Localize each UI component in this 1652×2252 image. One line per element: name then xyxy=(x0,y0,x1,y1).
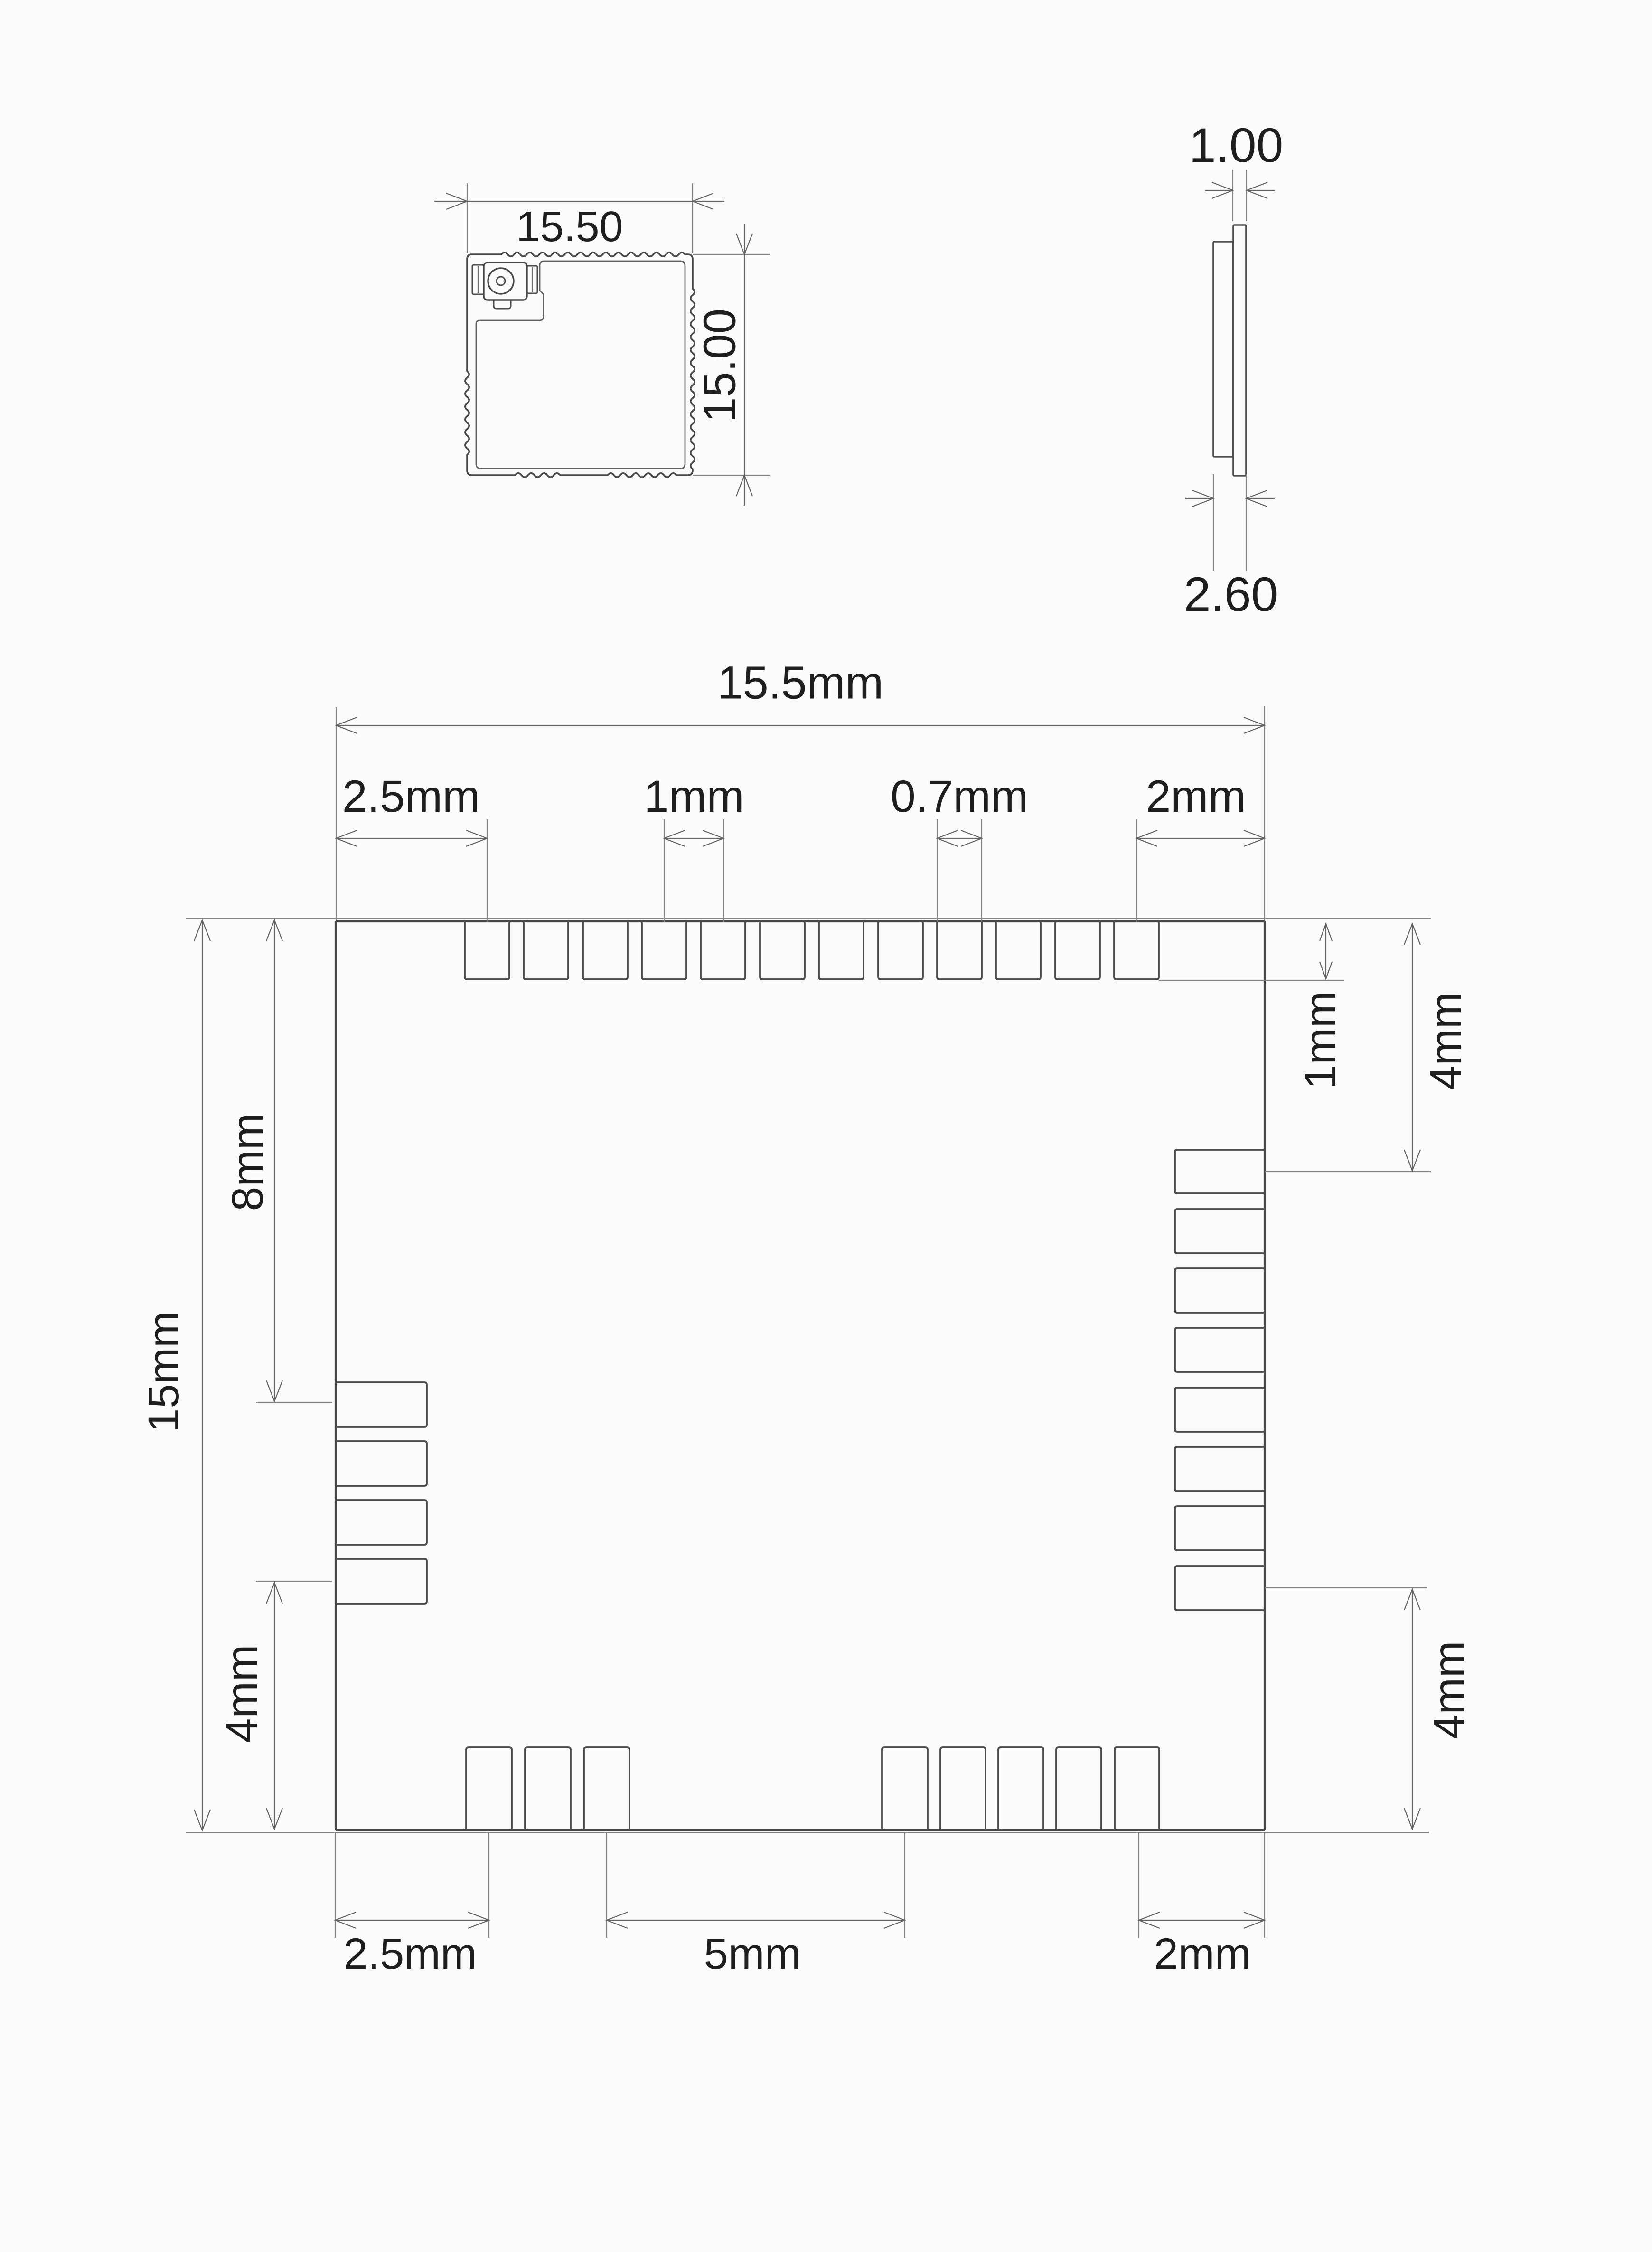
svg-text:15mm: 15mm xyxy=(140,1311,188,1433)
svg-text:15.50: 15.50 xyxy=(516,203,623,251)
svg-text:2mm: 2mm xyxy=(1154,1930,1251,1978)
svg-text:4mm: 4mm xyxy=(1424,1641,1474,1739)
svg-text:15.5mm: 15.5mm xyxy=(717,657,883,709)
svg-text:8mm: 8mm xyxy=(223,1113,272,1211)
svg-text:0.7mm: 0.7mm xyxy=(891,771,1028,822)
svg-text:2.60: 2.60 xyxy=(1184,567,1278,621)
svg-text:1.00: 1.00 xyxy=(1189,118,1284,172)
svg-text:1mm: 1mm xyxy=(644,771,744,822)
svg-text:2mm: 2mm xyxy=(1145,771,1246,822)
svg-text:1mm: 1mm xyxy=(1295,991,1345,1089)
svg-text:15.00: 15.00 xyxy=(695,309,745,422)
svg-text:2.5mm: 2.5mm xyxy=(342,771,480,822)
svg-text:5mm: 5mm xyxy=(704,1930,801,1978)
svg-text:4mm: 4mm xyxy=(217,1645,266,1743)
svg-text:2.5mm: 2.5mm xyxy=(343,1930,477,1978)
svg-text:4mm: 4mm xyxy=(1421,992,1470,1090)
